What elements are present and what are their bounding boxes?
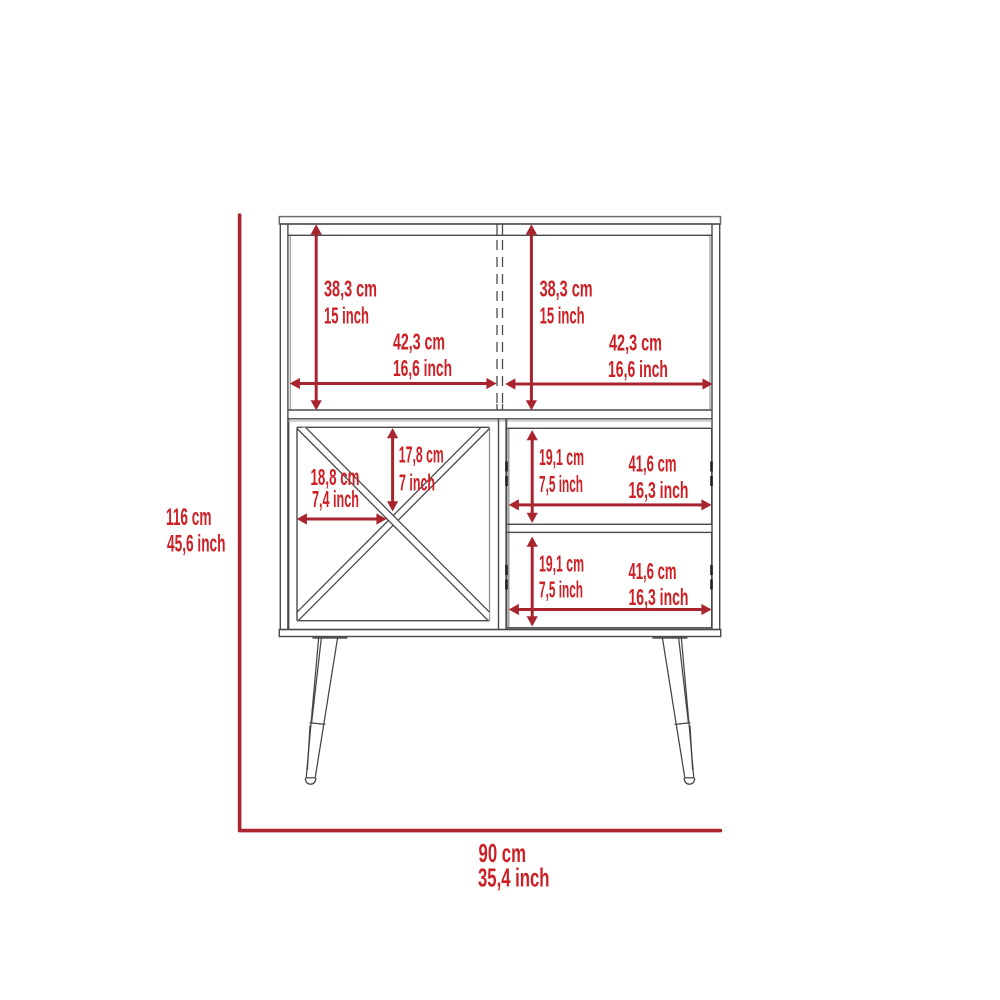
svg-text:7,5 inch: 7,5 inch bbox=[539, 471, 583, 497]
svg-text:19,1 cm: 19,1 cm bbox=[539, 444, 584, 470]
svg-text:7,5 inch: 7,5 inch bbox=[539, 576, 583, 602]
svg-text:116 cm: 116 cm bbox=[166, 504, 212, 531]
svg-text:38,3 cm: 38,3 cm bbox=[540, 276, 593, 302]
svg-text:19,1 cm: 19,1 cm bbox=[539, 551, 584, 577]
svg-text:15 inch: 15 inch bbox=[324, 303, 369, 329]
svg-text:45,6 inch: 45,6 inch bbox=[167, 531, 226, 558]
svg-text:17,8 cm: 17,8 cm bbox=[399, 442, 444, 468]
svg-text:41,6 cm: 41,6 cm bbox=[629, 450, 677, 476]
svg-text:16,3 inch: 16,3 inch bbox=[629, 477, 689, 503]
svg-text:7,4 inch: 7,4 inch bbox=[312, 486, 359, 512]
svg-text:16,3 inch: 16,3 inch bbox=[629, 584, 689, 610]
svg-text:16,6 inch: 16,6 inch bbox=[608, 356, 668, 382]
svg-text:35,4 inch: 35,4 inch bbox=[478, 862, 550, 892]
svg-text:7 inch: 7 inch bbox=[399, 469, 435, 495]
svg-text:42,3 cm: 42,3 cm bbox=[393, 328, 445, 354]
svg-text:15 inch: 15 inch bbox=[540, 303, 585, 329]
svg-text:16,6 inch: 16,6 inch bbox=[393, 355, 452, 381]
svg-text:42,3 cm: 42,3 cm bbox=[609, 329, 662, 355]
svg-text:38,3 cm: 38,3 cm bbox=[324, 276, 377, 302]
svg-text:41,6 cm: 41,6 cm bbox=[629, 558, 677, 584]
